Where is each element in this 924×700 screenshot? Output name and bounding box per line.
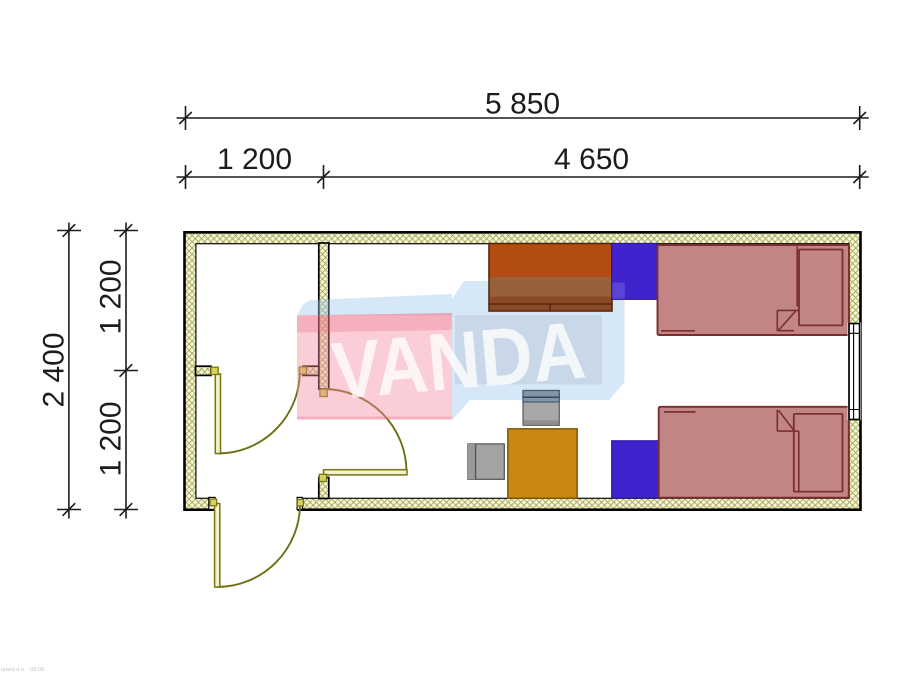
svg-text:5 850: 5 850 (485, 88, 560, 121)
svg-text:2 400: 2 400 (38, 332, 71, 407)
svg-text:1 200: 1 200 (95, 259, 128, 334)
svg-text:1 200: 1 200 (95, 401, 128, 476)
svg-text:1 200: 1 200 (217, 143, 292, 176)
svg-text:4 650: 4 650 (554, 143, 629, 176)
svg-text:tanod d.o. - 05 08: tanod d.o. - 05 08 (1, 667, 44, 673)
